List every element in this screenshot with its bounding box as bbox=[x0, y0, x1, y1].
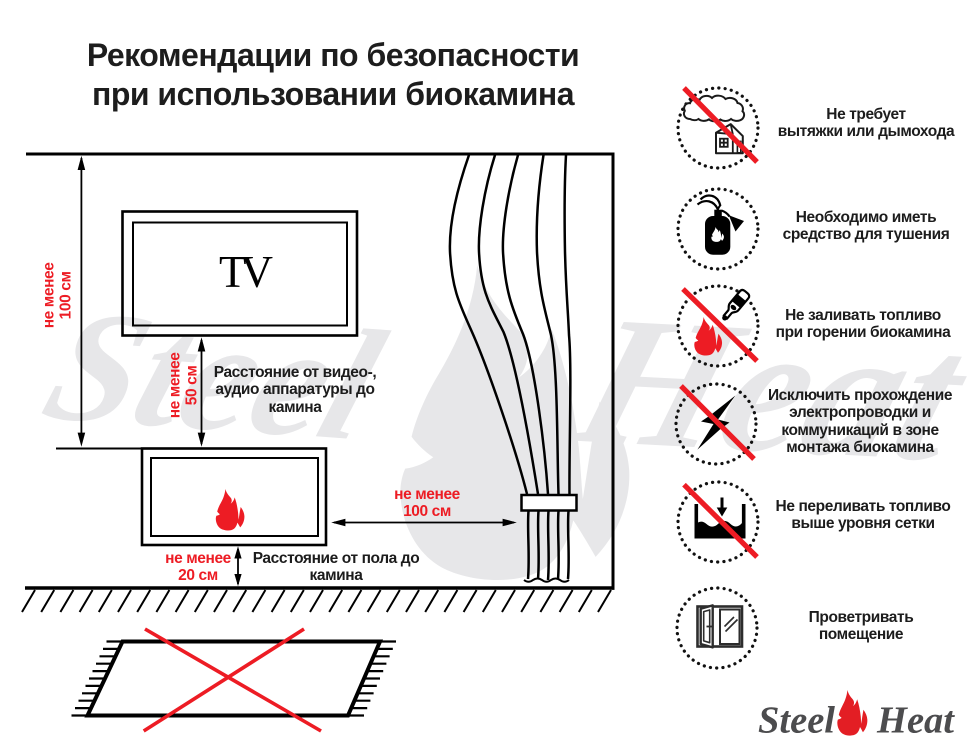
svg-text:TV: TV bbox=[219, 247, 272, 297]
svg-text:Heat: Heat bbox=[876, 700, 955, 742]
svg-text:Steel: Steel bbox=[758, 700, 835, 742]
